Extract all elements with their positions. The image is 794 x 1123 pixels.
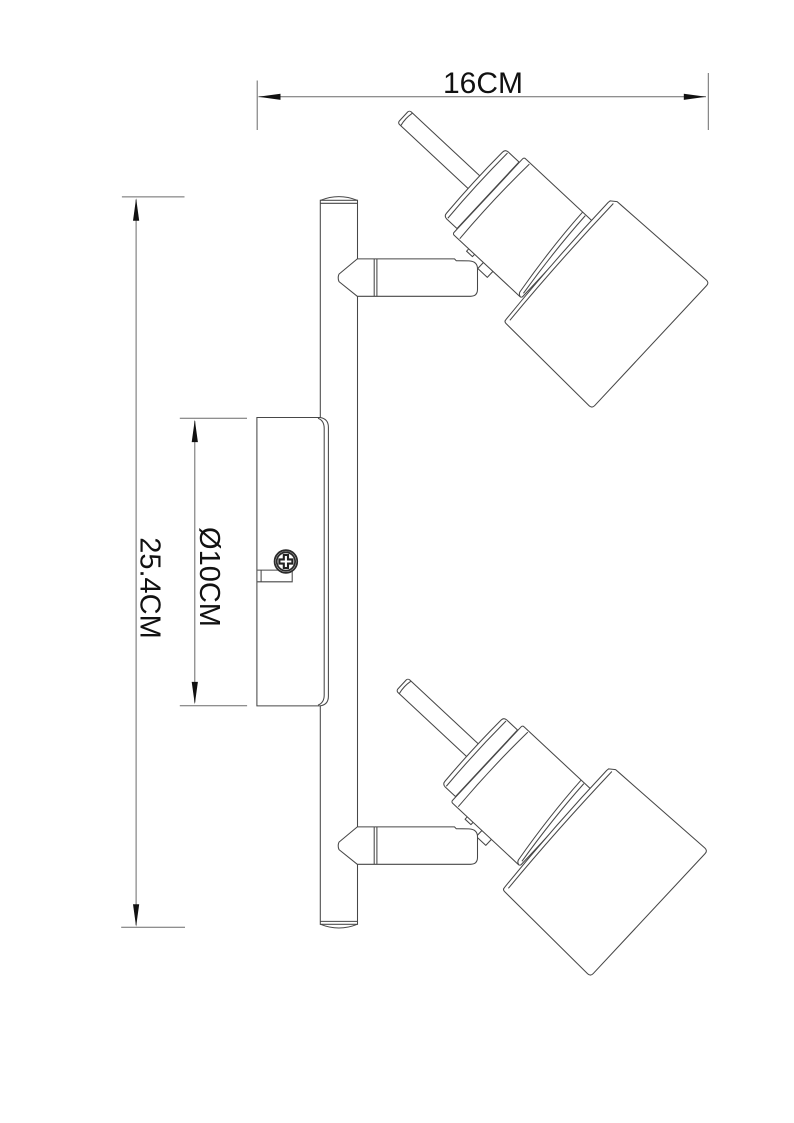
svg-text:Ø10CM: Ø10CM bbox=[193, 527, 225, 627]
svg-text:25.4CM: 25.4CM bbox=[134, 537, 166, 639]
svg-text:16CM: 16CM bbox=[443, 67, 523, 100]
